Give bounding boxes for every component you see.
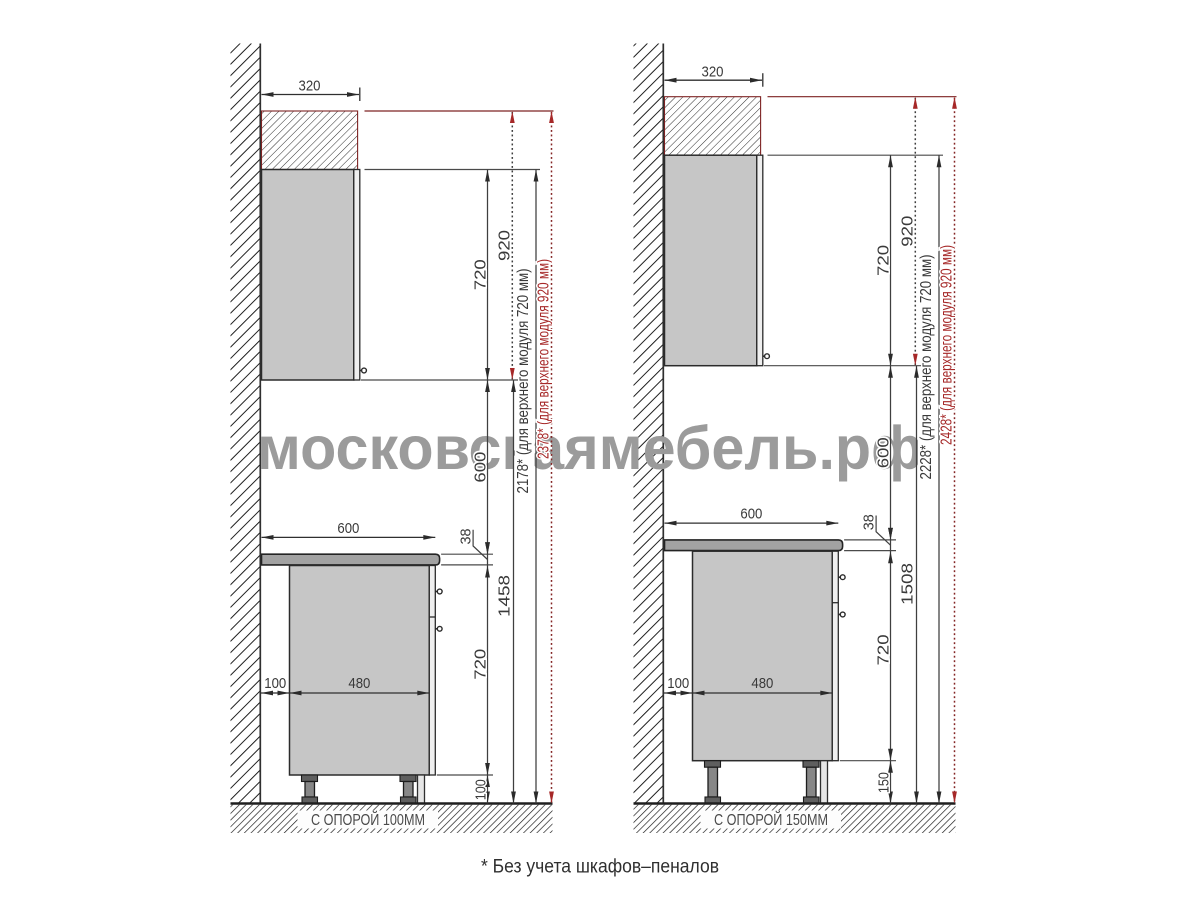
svg-text:С ОПОРОЙ 100ММ: С ОПОРОЙ 100ММ (311, 811, 425, 829)
svg-text:1458: 1458 (497, 575, 514, 617)
svg-text:480: 480 (348, 675, 370, 692)
svg-text:2228* (для верхнего модуля 720: 2228* (для верхнего модуля 720 мм) (918, 255, 935, 480)
svg-text:московскаямебель.рф: московскаямебель.рф (257, 414, 923, 482)
svg-text:38: 38 (861, 514, 878, 530)
svg-text:720: 720 (875, 634, 892, 665)
svg-text:920: 920 (497, 230, 514, 261)
svg-text:320: 320 (702, 63, 724, 80)
svg-text:720: 720 (472, 649, 489, 680)
svg-text:2378* (для верхнего модуля 920: 2378* (для верхнего модуля 920 мм) (536, 259, 553, 459)
svg-text:2178* (для верхнего модуля 720: 2178* (для верхнего модуля 720 мм) (515, 269, 532, 494)
svg-text:480: 480 (751, 675, 773, 692)
svg-text:600: 600 (337, 520, 359, 537)
svg-text:1508: 1508 (900, 563, 917, 605)
svg-text:600: 600 (472, 451, 489, 482)
svg-text:320: 320 (299, 78, 321, 95)
svg-text:920: 920 (900, 216, 917, 247)
svg-text:600: 600 (740, 506, 762, 523)
svg-text:100: 100 (472, 779, 489, 800)
svg-text:38: 38 (458, 529, 475, 545)
svg-text:100: 100 (667, 675, 689, 692)
svg-text:2428* (для верхнего модуля 920: 2428* (для верхнего модуля 920 мм) (939, 245, 956, 445)
svg-text:* Без учета шкафов–пеналов: * Без учета шкафов–пеналов (481, 857, 719, 878)
svg-text:150: 150 (875, 772, 892, 793)
svg-text:С ОПОРОЙ 150ММ: С ОПОРОЙ 150ММ (714, 811, 828, 829)
svg-text:100: 100 (264, 675, 286, 692)
svg-text:720: 720 (875, 245, 892, 276)
svg-text:720: 720 (472, 259, 489, 290)
svg-text:600: 600 (875, 437, 892, 468)
